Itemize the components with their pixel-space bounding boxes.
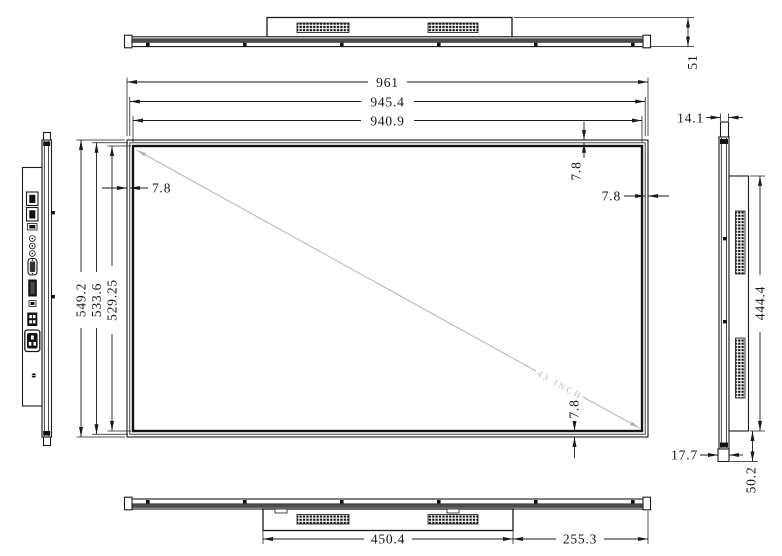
side-vent-grille-top — [736, 211, 746, 274]
dim-box-width-label: 450.4 — [371, 532, 405, 547]
dim-width-mid-label: 945.4 — [370, 94, 404, 109]
bottom-view — [125, 497, 651, 530]
dim-top-thickness-extension-lines — [721, 114, 729, 122]
dim-box-height-label: 444.4 — [753, 286, 768, 320]
right-view-top-tab — [721, 122, 729, 137]
right-side-view — [718, 122, 749, 462]
dim-top-thickness-label: 14.1 — [677, 111, 704, 126]
top-view-bezel-band — [132, 39, 642, 43]
dim-front-bezel-top: 7.8 — [569, 122, 585, 181]
dim-bezel-bottom-label: 7.8 — [567, 399, 582, 418]
top-view — [125, 18, 651, 48]
bottom-box-tab-right — [447, 509, 459, 513]
dim-bezel-left-label: 7.8 — [152, 181, 171, 196]
dim-bottom-depth-label: 50.2 — [744, 467, 759, 494]
dim-bottom-thickness-label: 17.7 — [671, 448, 698, 463]
top-vent-grille-right — [428, 23, 478, 33]
dim-bottom-right-offset: 255.3 — [513, 511, 648, 547]
bottom-view-right-endcap — [643, 497, 651, 510]
right-view-panel — [719, 137, 729, 449]
diagonal-dimension: 43 INCH — [137, 150, 640, 428]
dim-front-bezel-right: 7.8 — [602, 189, 669, 204]
left-side-view — [23, 133, 55, 446]
dim-side-top-thickness: 14.1 — [677, 111, 743, 126]
dim-width-active-label: 940.9 — [370, 113, 404, 128]
audio-jacks — [29, 236, 35, 257]
dim-side-bottom-thickness: 17.7 — [671, 448, 743, 463]
dim-side-box-height: 444.4 — [750, 176, 768, 431]
top-view-right-endcap — [643, 35, 651, 48]
dim-height-mid-label: 533.6 — [89, 283, 104, 317]
hdmi-port — [28, 280, 37, 297]
top-vent-grille-left — [297, 23, 349, 33]
left-view-panel — [42, 140, 52, 437]
dim-bezel-right-label: 7.8 — [602, 189, 621, 204]
dim-bottom-box-width: 450.4 — [263, 531, 513, 547]
rj45-port-2 — [27, 208, 39, 222]
left-view-bottom-tab — [44, 437, 51, 446]
power-switch — [27, 313, 37, 327]
display-dimension-drawing: 51 43 INCH 961 945.4 — [0, 0, 782, 556]
vga-port — [28, 259, 37, 276]
dim-height-outer-label: 549.2 — [74, 283, 89, 317]
dim-width-outer-label: 961 — [376, 75, 399, 90]
bottom-vent-grille-left — [297, 515, 349, 525]
rj45-port-1 — [27, 192, 39, 206]
technical-drawing-page: 51 43 INCH 961 945.4 — [0, 0, 782, 556]
aux-connector — [29, 301, 36, 307]
bottom-view-bezel-band — [132, 504, 642, 508]
top-view-left-endcap — [125, 35, 133, 48]
usb-port — [28, 224, 38, 231]
dim-right-offset-label: 255.3 — [563, 532, 597, 547]
ac-power-inlet — [25, 330, 40, 352]
dim-front-width-active: 940.9 — [133, 113, 642, 142]
dim-bezel-top-label: 7.8 — [569, 161, 584, 180]
dim-height-active-label: 529.25 — [105, 279, 120, 321]
bottom-view-left-endcap — [125, 497, 133, 510]
dim-top-depth-label: 51 — [685, 54, 700, 69]
diagonal-size-label: 43 INCH — [535, 368, 584, 401]
front-view: 43 INCH — [127, 140, 648, 437]
dim-front-bezel-bottom: 7.8 — [567, 399, 582, 458]
right-view-bottom-tab — [718, 449, 729, 462]
bottom-box-tab-left — [275, 509, 287, 513]
dim-side-bottom-depth: 50.2 — [730, 431, 759, 493]
bottom-vent-grille-right — [428, 515, 478, 525]
side-vent-grille-bottom — [736, 338, 746, 398]
